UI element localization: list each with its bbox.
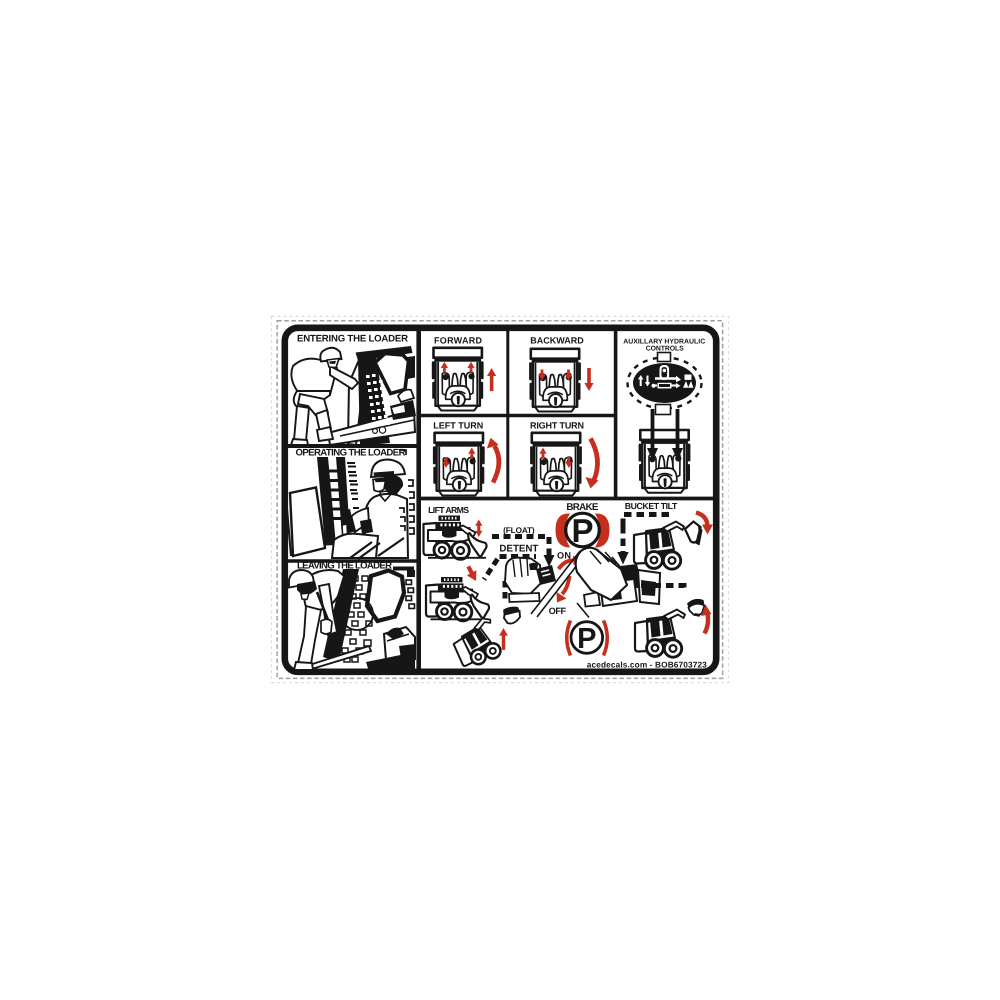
svg-text:CONTROLS: CONTROLS <box>646 346 684 353</box>
svg-text:LEFT TURN: LEFT TURN <box>433 420 483 430</box>
svg-text:LIFT ARMS: LIFT ARMS <box>428 505 469 515</box>
svg-text:RIGHT TURN: RIGHT TURN <box>530 420 584 430</box>
svg-text:OFF: OFF <box>549 606 567 616</box>
svg-text:acedecals.com - BOB6703723: acedecals.com - BOB6703723 <box>587 659 707 669</box>
svg-text:(FLOAT): (FLOAT) <box>503 526 535 535</box>
svg-text:P: P <box>571 512 593 549</box>
svg-text:FORWARD: FORWARD <box>434 335 483 345</box>
svg-text:BACKWARD: BACKWARD <box>530 335 584 345</box>
svg-text:ENTERING THE LOADER: ENTERING THE LOADER <box>297 334 408 345</box>
svg-text:DETENT: DETENT <box>499 544 538 555</box>
svg-text:BUCKET TILT: BUCKET TILT <box>625 501 678 511</box>
svg-text:OPERATING THE LOADER: OPERATING THE LOADER <box>296 447 406 458</box>
svg-text:AUXILLARY HYDRAULIC: AUXILLARY HYDRAULIC <box>623 338 705 345</box>
svg-text:P: P <box>577 623 596 655</box>
